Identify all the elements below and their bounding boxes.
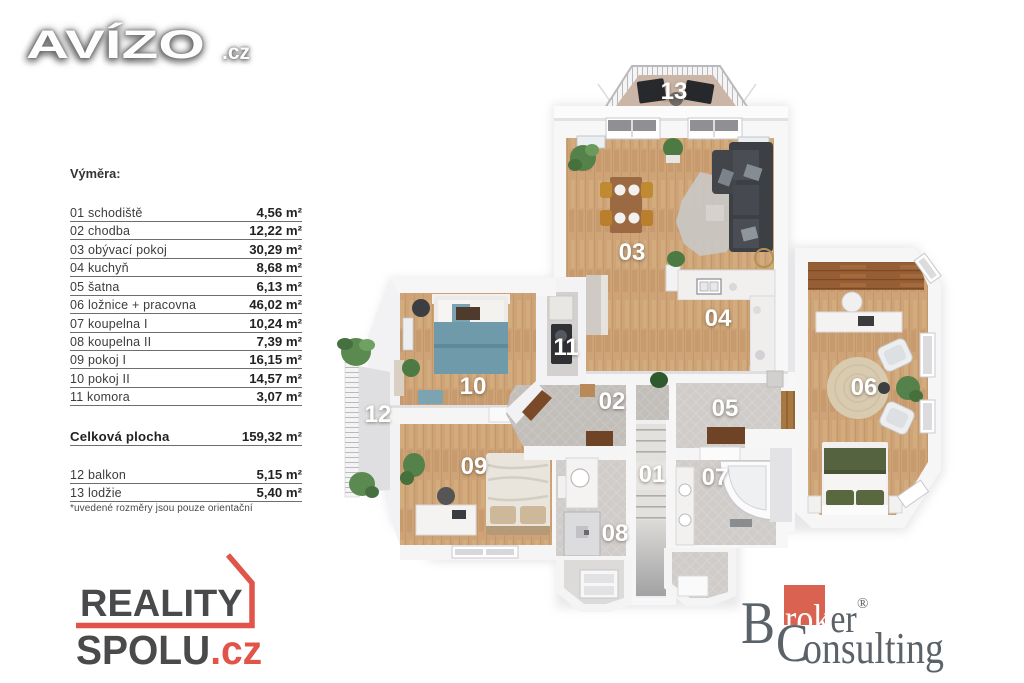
svg-text:10: 10 xyxy=(460,373,487,400)
svg-text:01: 01 xyxy=(639,461,666,488)
svg-text:12: 12 xyxy=(365,401,392,428)
svg-text:07: 07 xyxy=(702,464,729,491)
svg-text:06: 06 xyxy=(851,374,878,401)
svg-text:13: 13 xyxy=(661,78,688,105)
svg-text:05: 05 xyxy=(712,395,739,422)
svg-text:03: 03 xyxy=(619,239,646,266)
svg-text:02: 02 xyxy=(599,388,626,415)
svg-text:08: 08 xyxy=(602,520,629,547)
svg-text:11: 11 xyxy=(553,334,578,361)
svg-text:04: 04 xyxy=(705,305,732,332)
svg-text:09: 09 xyxy=(461,453,488,480)
